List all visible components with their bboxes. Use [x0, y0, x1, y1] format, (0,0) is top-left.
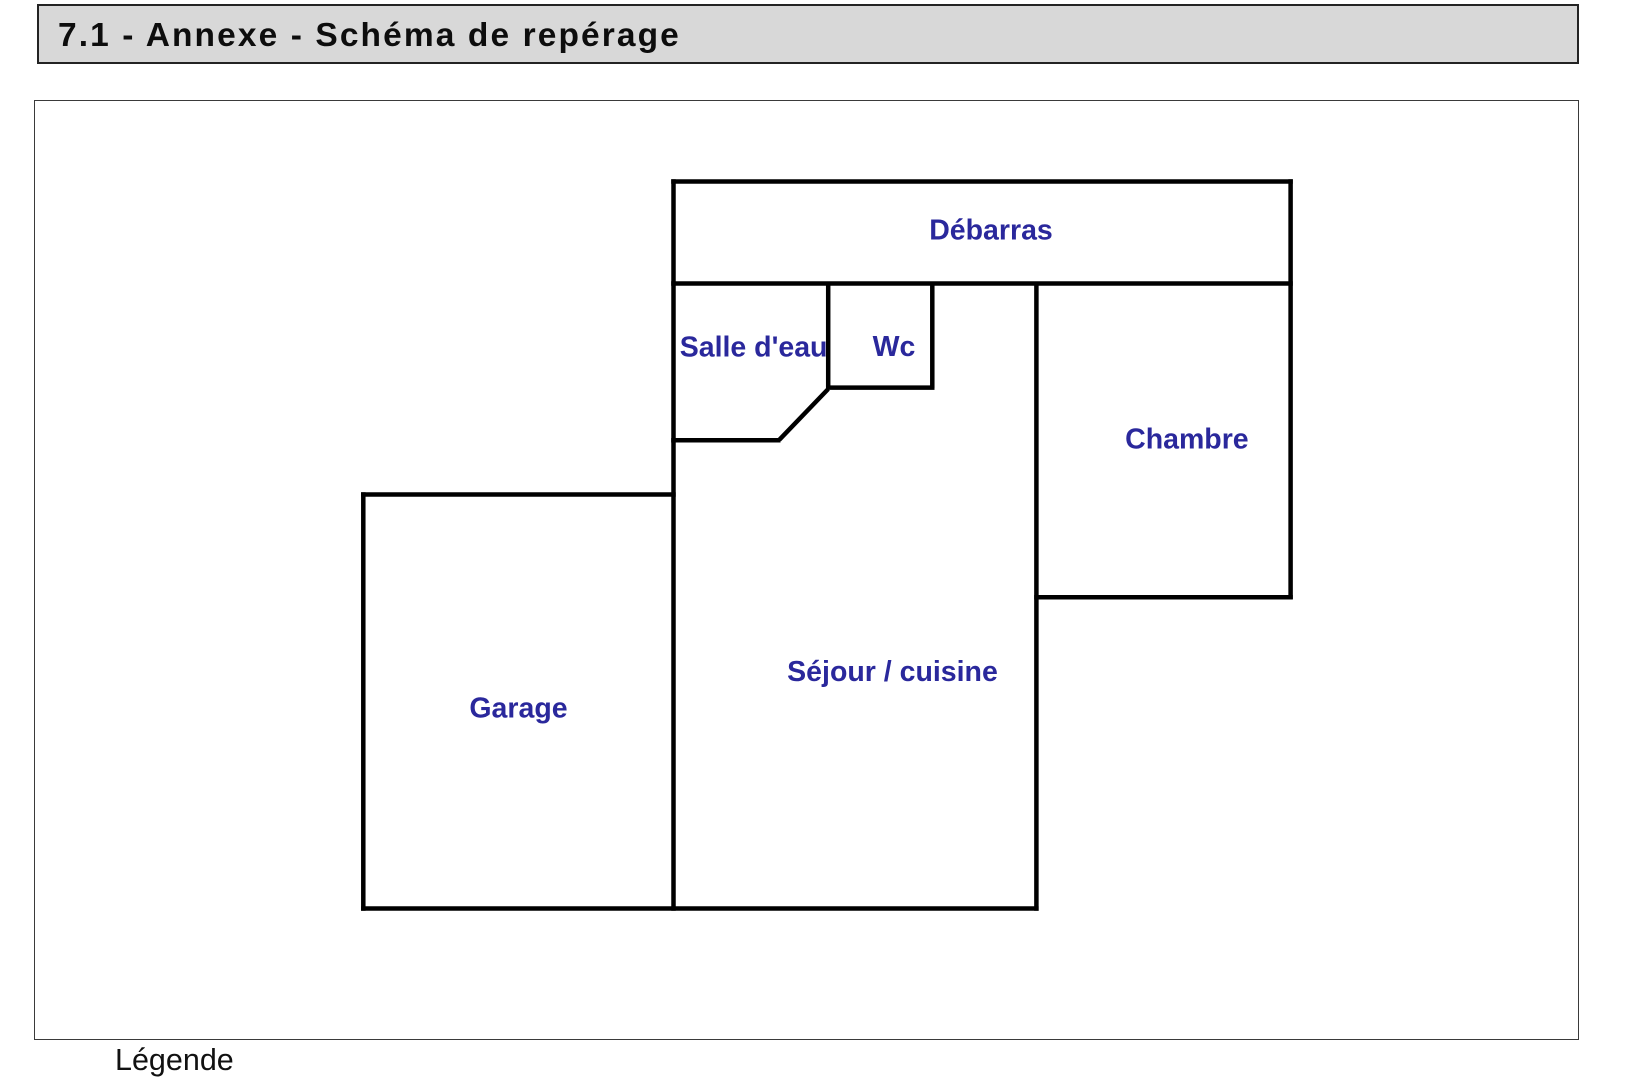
svg-text:Chambre: Chambre: [1125, 424, 1249, 456]
svg-text:Garage: Garage: [469, 692, 567, 724]
svg-text:Séjour / cuisine: Séjour / cuisine: [787, 656, 998, 688]
svg-text:Wc: Wc: [873, 331, 916, 363]
svg-text:Débarras: Débarras: [929, 214, 1053, 246]
svg-text:Salle d'eau: Salle d'eau: [680, 332, 828, 364]
